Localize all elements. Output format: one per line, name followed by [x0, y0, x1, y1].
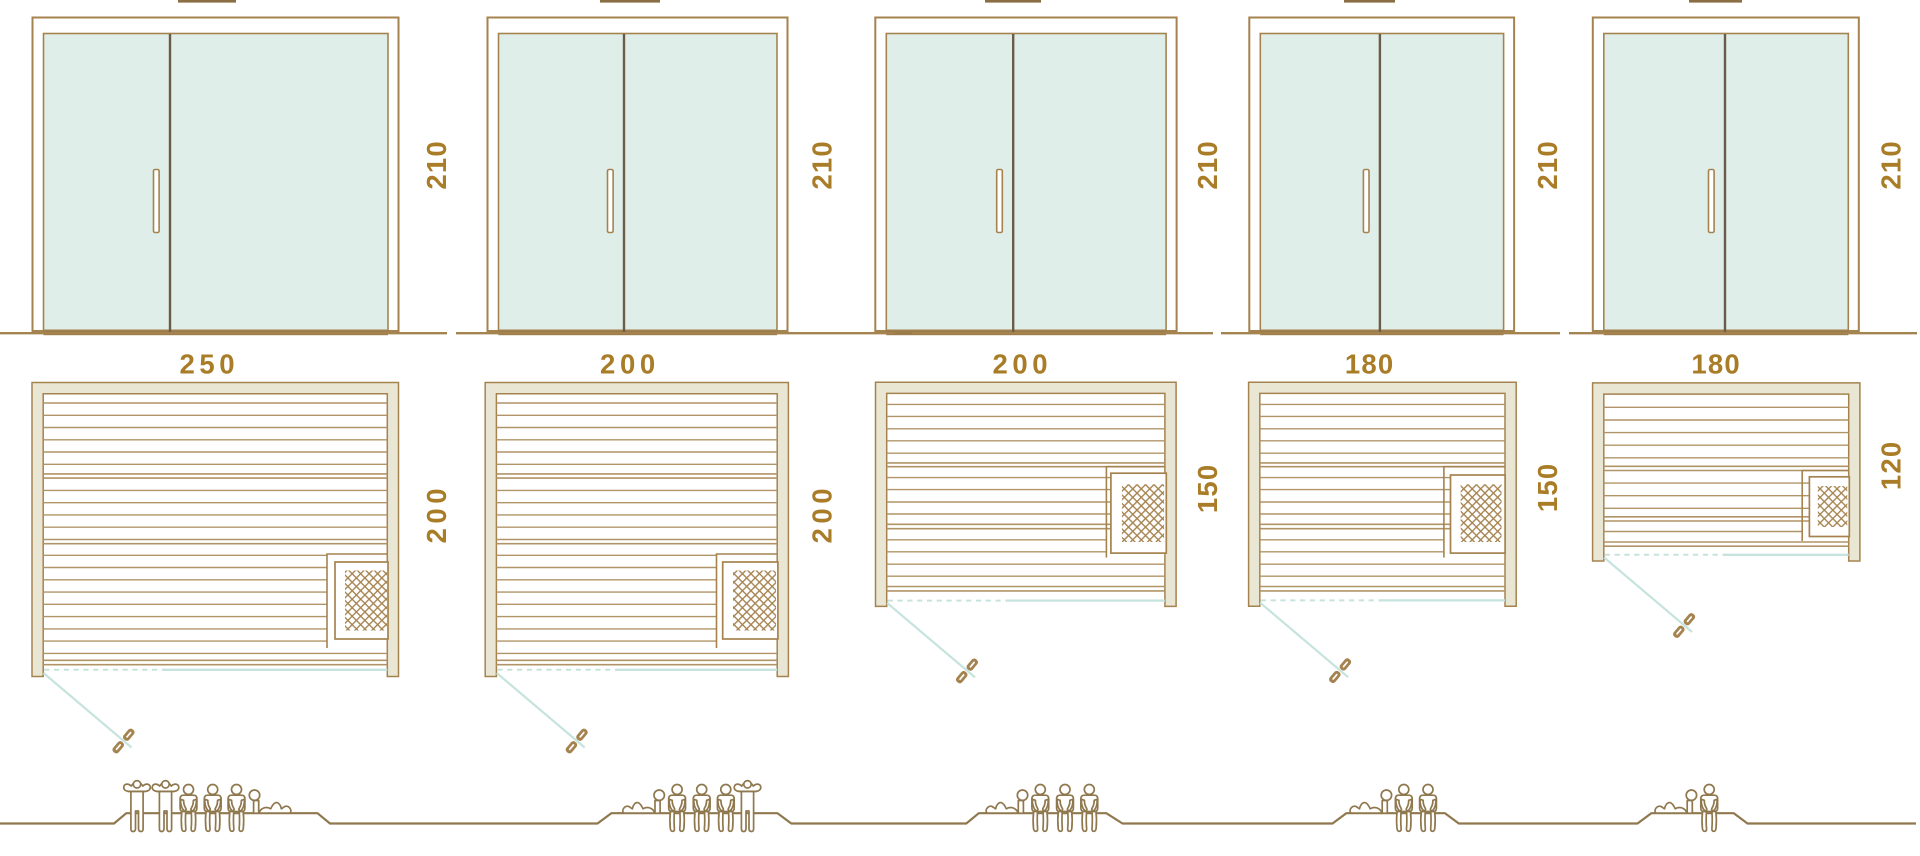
svg-text:210: 210 [1875, 140, 1906, 189]
svg-text:210: 210 [1191, 140, 1222, 189]
svg-text:150: 150 [1191, 464, 1222, 513]
svg-text:120: 120 [1875, 441, 1906, 490]
svg-text:150: 150 [1532, 463, 1563, 512]
svg-text:180: 180 [1345, 349, 1394, 380]
svg-text:200: 200 [600, 349, 660, 380]
svg-text:210: 210 [1532, 140, 1563, 189]
svg-text:180: 180 [1691, 349, 1740, 380]
svg-text:200: 200 [806, 484, 837, 544]
svg-text:210: 210 [806, 140, 837, 189]
svg-text:210: 210 [421, 140, 452, 189]
svg-text:250: 250 [179, 349, 239, 380]
svg-text:200: 200 [992, 349, 1052, 380]
svg-text:200: 200 [421, 484, 452, 544]
